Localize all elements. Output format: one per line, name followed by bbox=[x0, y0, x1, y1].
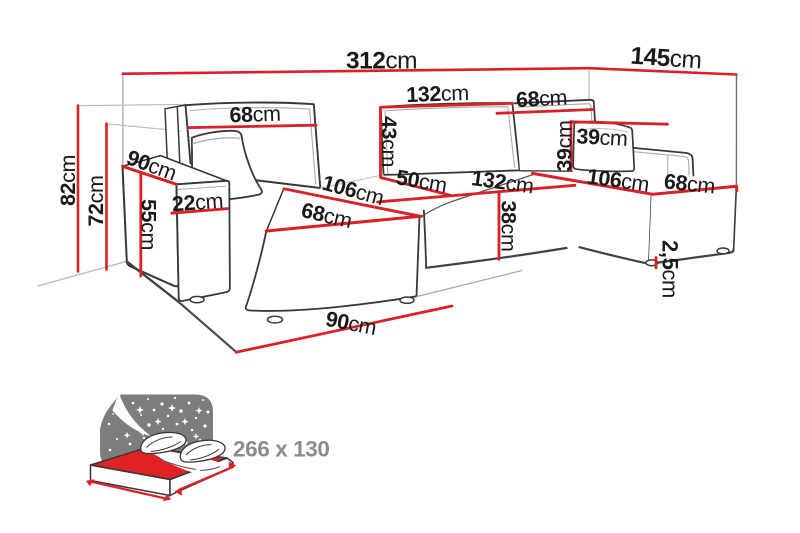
svg-text:43cm: 43cm bbox=[377, 116, 401, 167]
svg-text:2,5cm: 2,5cm bbox=[658, 240, 683, 298]
svg-text:68cm: 68cm bbox=[515, 85, 567, 112]
svg-text:312cm: 312cm bbox=[346, 47, 417, 74]
svg-text:82cm: 82cm bbox=[56, 155, 80, 206]
svg-text:132cm: 132cm bbox=[406, 81, 469, 107]
svg-text:55cm: 55cm bbox=[137, 199, 161, 250]
svg-text:39cm: 39cm bbox=[553, 121, 577, 172]
svg-text:22cm: 22cm bbox=[171, 189, 224, 216]
svg-text:38cm: 38cm bbox=[497, 201, 521, 252]
svg-text:266 x 130: 266 x 130 bbox=[233, 437, 330, 462]
svg-text:72cm: 72cm bbox=[84, 176, 108, 227]
svg-text:145cm: 145cm bbox=[630, 42, 703, 74]
svg-text:68cm: 68cm bbox=[229, 102, 281, 128]
svg-text:39cm: 39cm bbox=[576, 124, 628, 151]
svg-text:90cm: 90cm bbox=[324, 307, 379, 340]
